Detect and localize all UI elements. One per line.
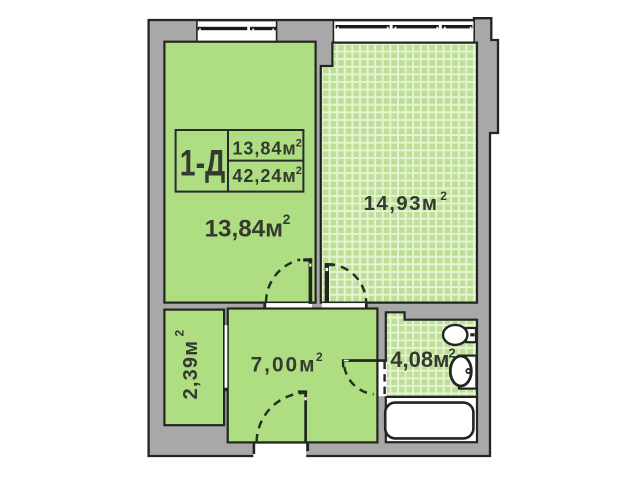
svg-text:2: 2 (440, 189, 447, 203)
svg-text:2,39м: 2,39м (180, 340, 202, 400)
svg-text:2: 2 (449, 347, 456, 361)
svg-text:2: 2 (316, 350, 323, 364)
svg-text:4,08м: 4,08м (390, 347, 449, 372)
svg-text:42,24м: 42,24м (232, 166, 296, 186)
svg-text:2: 2 (296, 138, 302, 150)
svg-text:14,93м: 14,93м (364, 192, 439, 215)
svg-text:2: 2 (173, 330, 187, 337)
svg-text:7,00м: 7,00м (251, 353, 317, 376)
svg-text:2: 2 (296, 165, 302, 177)
svg-text:13,84м: 13,84м (232, 139, 296, 159)
svg-text:1-Д: 1-Д (180, 142, 226, 183)
svg-text:2: 2 (283, 211, 291, 227)
svg-text:13,84м: 13,84м (205, 215, 283, 242)
